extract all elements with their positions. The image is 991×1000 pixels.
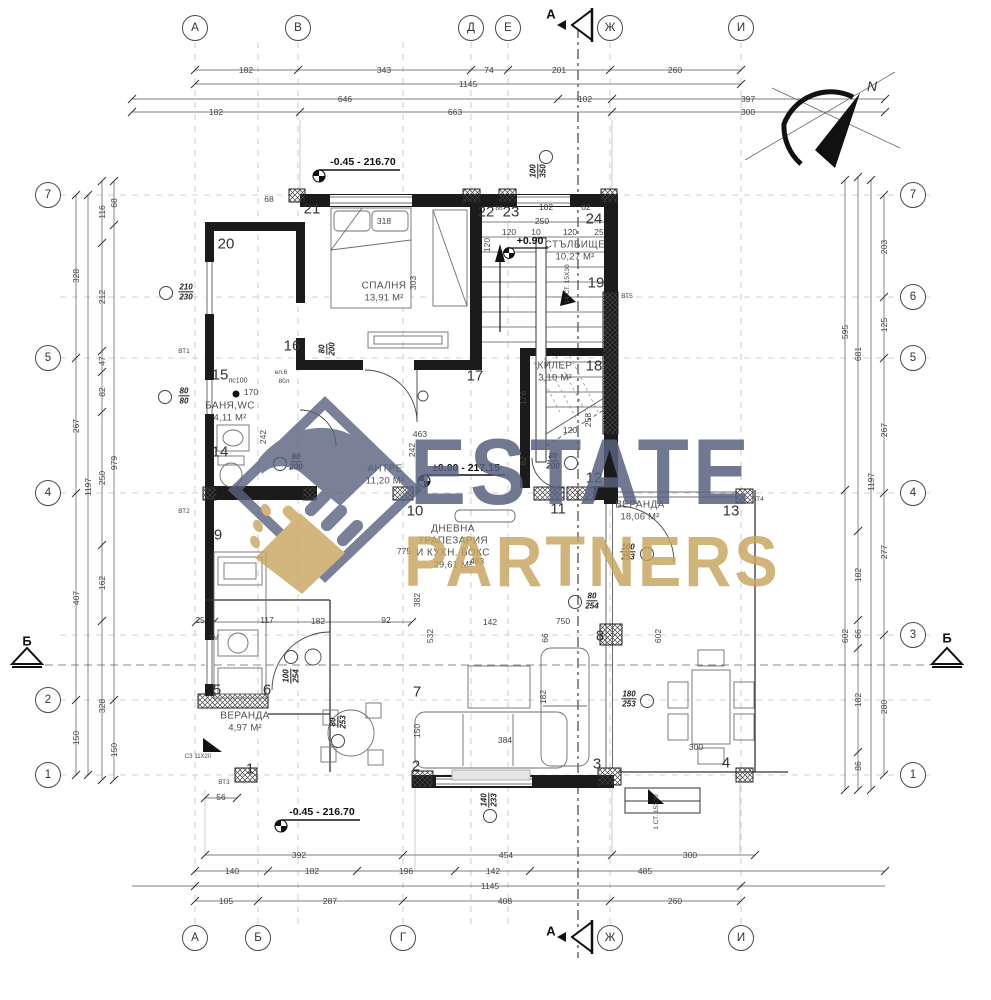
axis-bubble: 3 <box>900 622 926 648</box>
opening-marker-circle <box>158 390 172 404</box>
opening-marker-circle <box>331 734 345 748</box>
annotation: 80л <box>278 379 289 386</box>
section-label: А <box>546 924 555 939</box>
dim-label: 328 <box>72 269 81 283</box>
annotation: ВТ1 <box>178 349 190 356</box>
annotation: 750 <box>556 617 570 626</box>
elevation-mark: +0.90 <box>517 235 544 247</box>
axis-bubble: Е <box>495 15 521 41</box>
annotation: 120 <box>502 228 516 237</box>
opening-marker-circle <box>159 286 173 300</box>
annotation: 602 <box>654 629 663 643</box>
dim-label: 102 <box>578 95 592 104</box>
dim-label: 47 <box>98 356 107 365</box>
axis-bubble: 4 <box>900 480 926 506</box>
opening-size-marker: 180253 <box>621 689 636 708</box>
annotation: СЗ 11Х20 <box>185 754 211 760</box>
axis-bubble: 5 <box>900 345 926 371</box>
annotation: 120 <box>563 228 577 237</box>
room-label: СПАЛНЯ13,91 М² <box>362 280 407 303</box>
annotation: 117 <box>260 616 274 625</box>
dim-label: 267 <box>72 419 81 433</box>
opening-marker-circle <box>640 694 654 708</box>
annotation: 102 <box>539 203 553 212</box>
annotation: 56 <box>216 793 225 802</box>
annotation: 120 <box>483 238 492 252</box>
dim-label: 1197 <box>867 473 876 491</box>
annotation: 176 <box>519 391 528 405</box>
annotation: 300 <box>689 743 703 752</box>
position-tag: 15 <box>212 367 229 384</box>
dim-label: 979 <box>110 456 119 470</box>
annotation: пс100 <box>229 378 248 385</box>
axis-bubble: Ж <box>597 925 623 951</box>
dim-label: 82 <box>98 387 107 396</box>
annotation: 25 <box>594 228 603 237</box>
annotation: 242 <box>408 443 417 457</box>
axis-bubble: 6 <box>900 284 926 310</box>
annotation: 382 <box>413 593 422 607</box>
opening-marker-circle <box>539 150 553 164</box>
opening-size-marker: 80254 <box>585 591 598 610</box>
dim-label: 646 <box>338 95 352 104</box>
dim-label: 150 <box>110 743 119 757</box>
position-tag: 12 <box>586 470 603 487</box>
position-tag: 2 <box>412 758 420 775</box>
position-tag: 9 <box>214 527 222 544</box>
dim-label: 408 <box>498 897 512 906</box>
position-tag: 18 <box>586 358 603 375</box>
opening-size-marker: 80200 <box>546 451 559 470</box>
axis-bubble: 4 <box>35 480 61 506</box>
elevation-mark: ±0.00 - 217.15 <box>432 462 500 474</box>
axis-bubble: В <box>285 15 311 41</box>
annotation: 182 <box>311 617 325 626</box>
section-label: Б <box>22 634 31 649</box>
dim-label: 1145 <box>481 882 499 891</box>
annotation: ТМ <box>209 636 218 643</box>
axis-bubble: И <box>728 15 754 41</box>
dim-label: 74 <box>484 66 493 75</box>
position-tag: 23 <box>503 204 520 221</box>
dim-label: 86 <box>854 761 863 770</box>
opening-size-marker: 140233 <box>479 792 498 807</box>
axis-bubble: Б <box>245 925 271 951</box>
position-tag: 20 <box>218 236 235 253</box>
room-label: ДНЕВНАТРАПЕЗАРИЯИ КУХН. БОКС29,61 М² <box>416 523 490 570</box>
position-tag: 1 <box>246 761 254 778</box>
annotation: 318 <box>377 217 391 226</box>
dim-label: 277 <box>880 545 889 559</box>
position-tag: 4 <box>722 755 730 772</box>
dim-label: 1197 <box>84 478 93 496</box>
opening-marker-circle <box>483 809 497 823</box>
dim-label: 267 <box>880 423 889 437</box>
annotation: ВТ2 <box>178 509 190 516</box>
dim-label: 150 <box>72 731 81 745</box>
position-tag: 14 <box>212 444 229 461</box>
axis-bubble: И <box>728 925 754 951</box>
annotation: 68 <box>264 195 273 204</box>
annotation: 532 <box>426 629 435 643</box>
annotation: 14 СТ. 15Х30 <box>565 264 572 303</box>
annotation: 258 <box>584 413 593 427</box>
position-tag: 6 <box>263 682 271 699</box>
dim-label: 250 <box>98 471 107 485</box>
annotation: ВТ5 <box>621 294 633 301</box>
dim-label: 182 <box>854 568 863 582</box>
axis-bubble: Ж <box>597 15 623 41</box>
dim-label: 454 <box>499 851 513 860</box>
section-label: А <box>546 7 555 22</box>
annotation: 1 СТ. 15Х30 <box>654 794 661 830</box>
axis-bubble: 7 <box>35 182 61 208</box>
position-tag: 21 <box>304 201 321 218</box>
annotation: 170 <box>244 388 258 397</box>
elevation-mark: -0.45 - 216.70 <box>289 806 354 818</box>
position-tag: 13 <box>723 503 740 520</box>
opening-marker-circle <box>568 595 582 609</box>
position-tag: 11 <box>550 501 566 518</box>
annotation: 25 <box>195 616 204 625</box>
dim-label: 595 <box>841 325 850 339</box>
annotation: 303 <box>409 276 418 290</box>
position-tag: 7 <box>413 684 421 701</box>
dim-label: 1145 <box>459 80 477 89</box>
annotation: 120 <box>563 426 577 435</box>
dim-label: 343 <box>377 66 391 75</box>
axis-bubble: А <box>182 15 208 41</box>
opening-size-marker: 8080 <box>179 386 190 405</box>
axis-bubble: 1 <box>35 762 61 788</box>
opening-marker-circle <box>640 547 654 561</box>
position-tag: 8 <box>596 628 604 645</box>
dim-label: 212 <box>98 290 107 304</box>
annotation: ел.6 <box>275 370 288 377</box>
axis-bubble: 2 <box>35 687 61 713</box>
dim-label: 182 <box>305 867 319 876</box>
north-label: N <box>867 78 877 94</box>
dim-label: 68 <box>110 198 119 207</box>
annotation: 86 <box>495 206 502 213</box>
dim-label: 182 <box>239 66 253 75</box>
dim-label: 140 <box>225 867 239 876</box>
dim-label: 300 <box>741 108 755 117</box>
dim-label: 105 <box>219 897 233 906</box>
axis-bubble: Д <box>458 15 484 41</box>
annotation: 775 <box>397 547 411 556</box>
annotation: 92 <box>381 616 390 625</box>
annotation: 150 <box>413 724 422 738</box>
opening-size-marker: 80200 <box>317 342 336 355</box>
position-tag: 3 <box>593 756 601 773</box>
position-tag: 5 <box>213 682 221 699</box>
opening-size-marker: 210230 <box>178 282 193 301</box>
room-label: ВЕРАНДА4,97 М² <box>220 710 269 733</box>
dim-label: 116 <box>98 205 107 219</box>
room-label: АНТРЕ11,20 М² <box>366 463 404 486</box>
opening-marker-circle <box>284 650 298 664</box>
position-tag: 17 <box>467 368 484 385</box>
annotation: 463 <box>413 430 427 439</box>
annotation: 142 <box>483 618 497 627</box>
dim-label: 392 <box>292 851 306 860</box>
annotation: 384 <box>498 736 512 745</box>
dim-label: 260 <box>668 66 682 75</box>
axis-bubble: 5 <box>35 345 61 371</box>
elevation-mark: -0.45 - 216.70 <box>330 156 395 168</box>
dim-label: 485 <box>638 867 652 876</box>
dim-label: 260 <box>668 897 682 906</box>
opening-marker-circle <box>273 457 287 471</box>
axis-bubble: А <box>182 925 208 951</box>
opening-marker-circle <box>564 456 578 470</box>
dim-label: 328 <box>98 699 107 713</box>
dim-label: 663 <box>448 108 462 117</box>
annotation: 250 <box>535 217 549 226</box>
room-label: БАНЯ,WC4,11 М² <box>205 400 255 423</box>
dim-label: 397 <box>741 95 755 104</box>
plan-annotations: 1823437420126011456461023971826633003924… <box>0 0 991 1000</box>
position-tag: 10 <box>407 503 424 520</box>
annotation: 242 <box>259 430 268 444</box>
opening-size-marker: 100254 <box>281 668 300 683</box>
dim-label: 203 <box>880 240 889 254</box>
position-tag: 16 <box>284 338 301 355</box>
annotation: 62 <box>581 203 590 212</box>
position-tag: 19 <box>588 275 605 292</box>
dim-label: 182 <box>854 693 863 707</box>
axis-bubble: Г <box>390 925 416 951</box>
dim-label: 300 <box>683 851 697 860</box>
section-label: Б <box>942 631 951 646</box>
floor-plan-canvas: 1823437420126011456461023971826633003924… <box>0 0 991 1000</box>
dim-label: 287 <box>323 897 337 906</box>
annotation: ВТ4 <box>752 497 764 504</box>
dim-label: 66 <box>854 629 863 638</box>
opening-size-marker: 100350 <box>528 163 547 178</box>
position-tag: 24 <box>586 211 603 228</box>
room-label: ВЕРАНДА18,06 М² <box>615 499 664 522</box>
dim-label: 201 <box>552 66 566 75</box>
dim-label: 681 <box>854 347 863 361</box>
dim-label: 280 <box>880 700 889 714</box>
opening-size-marker: 100253 <box>620 542 635 561</box>
annotation: 182 <box>539 690 548 704</box>
dim-label: 196 <box>399 867 413 876</box>
dim-label: 602 <box>841 629 850 643</box>
dim-label: 142 <box>486 867 500 876</box>
annotation: ВТ3 <box>218 780 230 787</box>
annotation: 82 <box>519 456 528 465</box>
dim-label: 162 <box>98 576 107 590</box>
opening-size-marker: 80200 <box>289 452 302 471</box>
position-tag: 22 <box>478 204 495 221</box>
opening-size-marker: 80253 <box>328 715 347 728</box>
room-label: КИЛЕР3,10 М² <box>538 360 573 383</box>
annotation: 66 <box>541 633 550 642</box>
dim-label: 407 <box>72 591 81 605</box>
dim-label: 125 <box>880 318 889 332</box>
room-label: СТЪЛБИЩЕ10,27 М² <box>545 239 605 262</box>
dim-label: 182 <box>209 108 223 117</box>
axis-bubble: 1 <box>900 762 926 788</box>
axis-bubble: 7 <box>900 182 926 208</box>
